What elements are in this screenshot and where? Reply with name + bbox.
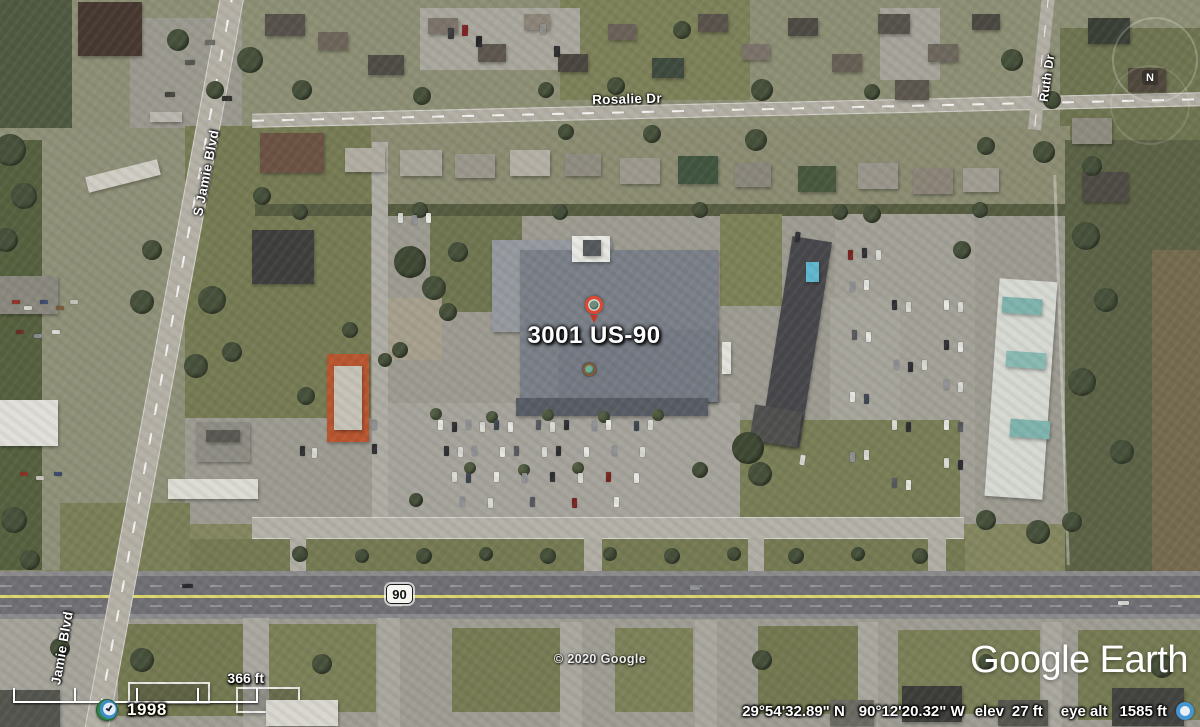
parked-car bbox=[16, 330, 24, 334]
parked-car bbox=[958, 342, 963, 352]
tree bbox=[130, 648, 154, 672]
building bbox=[0, 400, 58, 446]
parked-car bbox=[312, 448, 317, 458]
tree bbox=[643, 125, 661, 143]
tree bbox=[1026, 520, 1050, 544]
parked-car bbox=[634, 421, 639, 431]
parked-car bbox=[554, 46, 560, 57]
parked-car bbox=[480, 422, 485, 432]
parked-car bbox=[614, 497, 619, 507]
parked-car bbox=[958, 422, 963, 432]
tree bbox=[1001, 49, 1023, 71]
highway-shield-us90: 90 bbox=[386, 584, 413, 604]
highway-shield-number: 90 bbox=[392, 587, 406, 602]
parked-car bbox=[542, 447, 547, 457]
tree bbox=[448, 242, 468, 262]
parked-car bbox=[850, 282, 855, 292]
parked-car bbox=[300, 446, 305, 456]
status-globe-icon[interactable] bbox=[1176, 702, 1194, 720]
building bbox=[318, 32, 348, 50]
tree bbox=[430, 408, 442, 420]
building bbox=[565, 154, 601, 176]
tree bbox=[851, 547, 865, 561]
parked-car bbox=[572, 498, 577, 508]
tree bbox=[652, 409, 664, 421]
google-earth-window: Rosalie Dr S Jamie Blvd Ruth Dr Jamie Bl… bbox=[0, 0, 1200, 727]
building bbox=[698, 14, 728, 32]
building bbox=[583, 240, 601, 256]
tree bbox=[479, 547, 493, 561]
tree bbox=[692, 202, 708, 218]
tree bbox=[673, 21, 691, 39]
tree bbox=[912, 548, 928, 564]
tree bbox=[422, 276, 446, 300]
road-centerline bbox=[0, 585, 1200, 587]
status-bar: 29°54'32.89" N 90°12'20.32" W elev 27 ft… bbox=[742, 702, 1194, 720]
parked-car bbox=[522, 473, 527, 483]
building bbox=[400, 150, 442, 176]
building bbox=[608, 24, 636, 40]
parked-car bbox=[476, 36, 482, 47]
parked-car bbox=[514, 446, 519, 456]
building bbox=[266, 700, 338, 726]
parked-car bbox=[34, 334, 42, 338]
building bbox=[1001, 297, 1042, 316]
tree bbox=[664, 548, 680, 564]
tree bbox=[1082, 156, 1102, 176]
parked-car bbox=[24, 306, 32, 310]
terrain-patch bbox=[0, 0, 72, 142]
road-segment bbox=[0, 595, 1200, 598]
parked-car bbox=[536, 420, 541, 430]
compass-north-label: N bbox=[1146, 72, 1154, 84]
parked-car bbox=[222, 96, 232, 101]
building bbox=[558, 54, 588, 72]
parked-car bbox=[864, 450, 869, 460]
tree bbox=[222, 342, 242, 362]
parked-car bbox=[944, 300, 949, 310]
tree bbox=[1094, 288, 1118, 312]
history-clock-icon[interactable] bbox=[96, 699, 118, 721]
tree bbox=[1110, 440, 1134, 464]
building bbox=[368, 55, 404, 75]
parked-car bbox=[958, 460, 963, 470]
building bbox=[510, 150, 550, 176]
parked-car bbox=[550, 472, 555, 482]
parked-car bbox=[584, 447, 589, 457]
parked-car bbox=[592, 421, 597, 431]
parked-car bbox=[1118, 601, 1129, 605]
parked-car bbox=[460, 497, 465, 507]
tree bbox=[292, 546, 308, 562]
tree bbox=[184, 354, 208, 378]
parked-car bbox=[606, 472, 611, 482]
tree bbox=[292, 80, 312, 100]
scale-bar-tick bbox=[13, 688, 15, 703]
parked-car bbox=[466, 473, 471, 483]
building bbox=[252, 230, 314, 284]
tree bbox=[392, 342, 408, 358]
street-label-rosalie-dr: Rosalie Dr bbox=[592, 91, 662, 108]
tree bbox=[167, 29, 189, 51]
building bbox=[1082, 172, 1128, 202]
building bbox=[524, 14, 550, 30]
parked-car bbox=[944, 380, 949, 390]
scale-bar-label: 366 ft bbox=[227, 670, 264, 686]
parked-car bbox=[452, 472, 457, 482]
tree bbox=[439, 303, 457, 321]
building bbox=[735, 163, 771, 187]
parked-car bbox=[185, 60, 195, 65]
status-elev-value: 27 ft bbox=[1012, 703, 1043, 720]
building bbox=[1009, 419, 1050, 440]
building bbox=[345, 148, 385, 172]
building bbox=[1005, 351, 1046, 370]
parked-car bbox=[530, 497, 535, 507]
road-segment bbox=[0, 605, 1200, 607]
tree bbox=[237, 47, 263, 73]
tree bbox=[732, 432, 764, 464]
parked-car bbox=[488, 498, 493, 508]
tree bbox=[727, 547, 741, 561]
tree bbox=[542, 409, 554, 421]
tree bbox=[355, 549, 369, 563]
parked-car bbox=[908, 362, 913, 372]
google-earth-logo: Google Earth bbox=[970, 639, 1188, 682]
tree bbox=[603, 547, 617, 561]
parked-car bbox=[864, 394, 869, 404]
parked-car bbox=[606, 420, 611, 430]
building bbox=[913, 168, 953, 194]
parked-car bbox=[472, 446, 477, 456]
parked-car bbox=[398, 213, 403, 223]
building bbox=[928, 44, 958, 62]
status-eye-alt-label: eye alt bbox=[1061, 703, 1108, 720]
parked-car bbox=[612, 446, 617, 456]
tree bbox=[752, 650, 772, 670]
parked-car bbox=[564, 420, 569, 430]
parked-car bbox=[412, 215, 417, 225]
building bbox=[168, 479, 258, 499]
tree bbox=[976, 510, 996, 530]
road-centerline bbox=[0, 605, 1200, 607]
parked-car bbox=[494, 420, 499, 430]
parked-car bbox=[944, 420, 949, 430]
parked-car bbox=[958, 302, 963, 312]
building bbox=[652, 58, 684, 78]
photo-marker-icon[interactable] bbox=[583, 363, 596, 376]
tree bbox=[788, 548, 804, 564]
tree bbox=[413, 87, 431, 105]
tree bbox=[297, 387, 315, 405]
tree bbox=[748, 462, 772, 486]
terrain-patch bbox=[380, 298, 442, 360]
parked-car bbox=[20, 472, 28, 476]
terrain-patch bbox=[615, 628, 693, 712]
tree bbox=[1068, 368, 1096, 396]
parked-car bbox=[426, 213, 431, 223]
parked-car bbox=[508, 422, 513, 432]
status-latitude: 29°54'32.89" N bbox=[742, 703, 845, 720]
parked-car bbox=[958, 382, 963, 392]
parked-car bbox=[540, 24, 546, 35]
building bbox=[678, 156, 718, 184]
parked-car bbox=[852, 330, 857, 340]
status-elev-label: elev bbox=[975, 703, 1004, 720]
building bbox=[455, 154, 495, 178]
tree bbox=[198, 286, 226, 314]
road-segment bbox=[560, 622, 582, 727]
tree bbox=[863, 205, 881, 223]
tree bbox=[864, 84, 880, 100]
parked-car bbox=[922, 360, 927, 370]
parked-car bbox=[944, 340, 949, 350]
terrain-patch bbox=[720, 214, 782, 306]
scale-bar-tick bbox=[256, 688, 258, 703]
building bbox=[895, 80, 929, 100]
parked-car bbox=[578, 473, 583, 483]
parked-car bbox=[462, 25, 468, 36]
building bbox=[620, 158, 660, 184]
parked-car bbox=[452, 422, 457, 432]
building bbox=[972, 14, 1000, 30]
parked-car bbox=[40, 300, 48, 304]
building bbox=[1072, 118, 1112, 144]
tree bbox=[832, 204, 848, 220]
building bbox=[265, 14, 305, 36]
parked-car bbox=[906, 422, 911, 432]
placemark-label[interactable]: 3001 US-90 bbox=[527, 322, 660, 350]
road-segment bbox=[0, 585, 1200, 587]
tree bbox=[130, 290, 154, 314]
parked-car bbox=[438, 420, 443, 430]
terrain-patch bbox=[1152, 250, 1200, 572]
parked-car bbox=[458, 447, 463, 457]
tree bbox=[538, 82, 554, 98]
parked-car bbox=[550, 422, 555, 432]
parked-car bbox=[448, 28, 454, 39]
building bbox=[742, 44, 770, 60]
building bbox=[798, 166, 836, 192]
terrain-patch bbox=[380, 403, 740, 521]
parked-car bbox=[892, 300, 897, 310]
placemark-pin-icon[interactable] bbox=[585, 296, 603, 314]
parked-car bbox=[372, 444, 377, 454]
tree bbox=[1, 507, 27, 533]
terrain-patch bbox=[452, 628, 560, 712]
parked-car bbox=[876, 250, 881, 260]
tree bbox=[312, 654, 332, 674]
parked-car bbox=[848, 250, 853, 260]
placemark-pin-tail-icon bbox=[590, 315, 598, 323]
parked-car bbox=[444, 446, 449, 456]
building bbox=[878, 14, 910, 34]
logo-google-text: Google bbox=[970, 639, 1090, 682]
parked-car bbox=[494, 472, 499, 482]
parked-car bbox=[864, 280, 869, 290]
imagery-year-label: 1998 bbox=[127, 700, 167, 720]
building bbox=[196, 422, 250, 462]
parked-car bbox=[894, 360, 899, 370]
road-segment bbox=[695, 620, 717, 727]
road-segment bbox=[252, 517, 964, 539]
tree bbox=[342, 322, 358, 338]
parked-car bbox=[892, 478, 897, 488]
building bbox=[963, 168, 999, 192]
tree bbox=[953, 241, 971, 259]
status-longitude: 90°12'20.32" W bbox=[859, 703, 965, 720]
tree bbox=[977, 137, 995, 155]
tree bbox=[1072, 222, 1100, 250]
parked-car bbox=[862, 248, 867, 258]
satellite-map-canvas[interactable] bbox=[0, 0, 1200, 727]
tree bbox=[1033, 141, 1055, 163]
tree bbox=[20, 550, 40, 570]
parked-car bbox=[165, 92, 175, 97]
tree bbox=[409, 493, 423, 507]
copyright-watermark: © 2020 Google bbox=[554, 652, 646, 666]
parked-car bbox=[690, 586, 700, 590]
tree bbox=[552, 204, 568, 220]
parked-car bbox=[648, 420, 653, 430]
parked-car bbox=[866, 332, 871, 342]
parked-car bbox=[56, 306, 64, 310]
building bbox=[788, 18, 818, 36]
tree bbox=[253, 187, 271, 205]
building bbox=[334, 366, 362, 430]
tree bbox=[558, 124, 574, 140]
building bbox=[832, 54, 862, 72]
parked-car bbox=[906, 480, 911, 490]
tree bbox=[394, 246, 426, 278]
parked-car bbox=[634, 473, 639, 483]
parked-car bbox=[466, 420, 471, 430]
building bbox=[206, 430, 240, 442]
tree bbox=[1062, 512, 1082, 532]
parked-car bbox=[70, 300, 78, 304]
parked-car bbox=[944, 458, 949, 468]
building bbox=[78, 2, 142, 56]
compass-north-indicator[interactable]: N bbox=[1142, 70, 1158, 85]
parked-car bbox=[556, 446, 561, 456]
status-eye-alt-value: 1585 ft bbox=[1119, 703, 1167, 720]
tree bbox=[416, 548, 432, 564]
tree bbox=[11, 183, 37, 209]
tree bbox=[972, 202, 988, 218]
road-segment bbox=[372, 142, 388, 520]
building bbox=[858, 163, 898, 189]
parked-car bbox=[850, 392, 855, 402]
tree bbox=[745, 129, 767, 151]
parked-car bbox=[52, 330, 60, 334]
parked-car bbox=[54, 472, 62, 476]
building bbox=[150, 112, 182, 122]
tree bbox=[378, 353, 392, 367]
pool bbox=[806, 262, 819, 282]
road-segment bbox=[378, 618, 400, 727]
logo-earth-text: Earth bbox=[1100, 639, 1188, 682]
parked-car bbox=[906, 302, 911, 312]
building bbox=[722, 342, 731, 374]
tree bbox=[292, 204, 308, 220]
parked-car bbox=[372, 420, 377, 430]
tree bbox=[692, 462, 708, 478]
historical-imagery-indicator[interactable]: 1998 bbox=[96, 699, 167, 721]
parked-car bbox=[500, 447, 505, 457]
tree bbox=[142, 240, 162, 260]
building bbox=[478, 44, 506, 62]
building bbox=[260, 133, 324, 173]
tree bbox=[751, 79, 773, 101]
parked-car bbox=[182, 584, 193, 588]
tree bbox=[540, 548, 556, 564]
parked-car bbox=[892, 420, 897, 430]
parked-car bbox=[205, 40, 215, 45]
parked-car bbox=[12, 300, 20, 304]
scale-bar-tick bbox=[197, 688, 199, 703]
parked-car bbox=[36, 476, 44, 480]
parked-car bbox=[850, 452, 855, 462]
parked-car bbox=[640, 447, 645, 457]
scale-bar-tick bbox=[74, 688, 76, 703]
